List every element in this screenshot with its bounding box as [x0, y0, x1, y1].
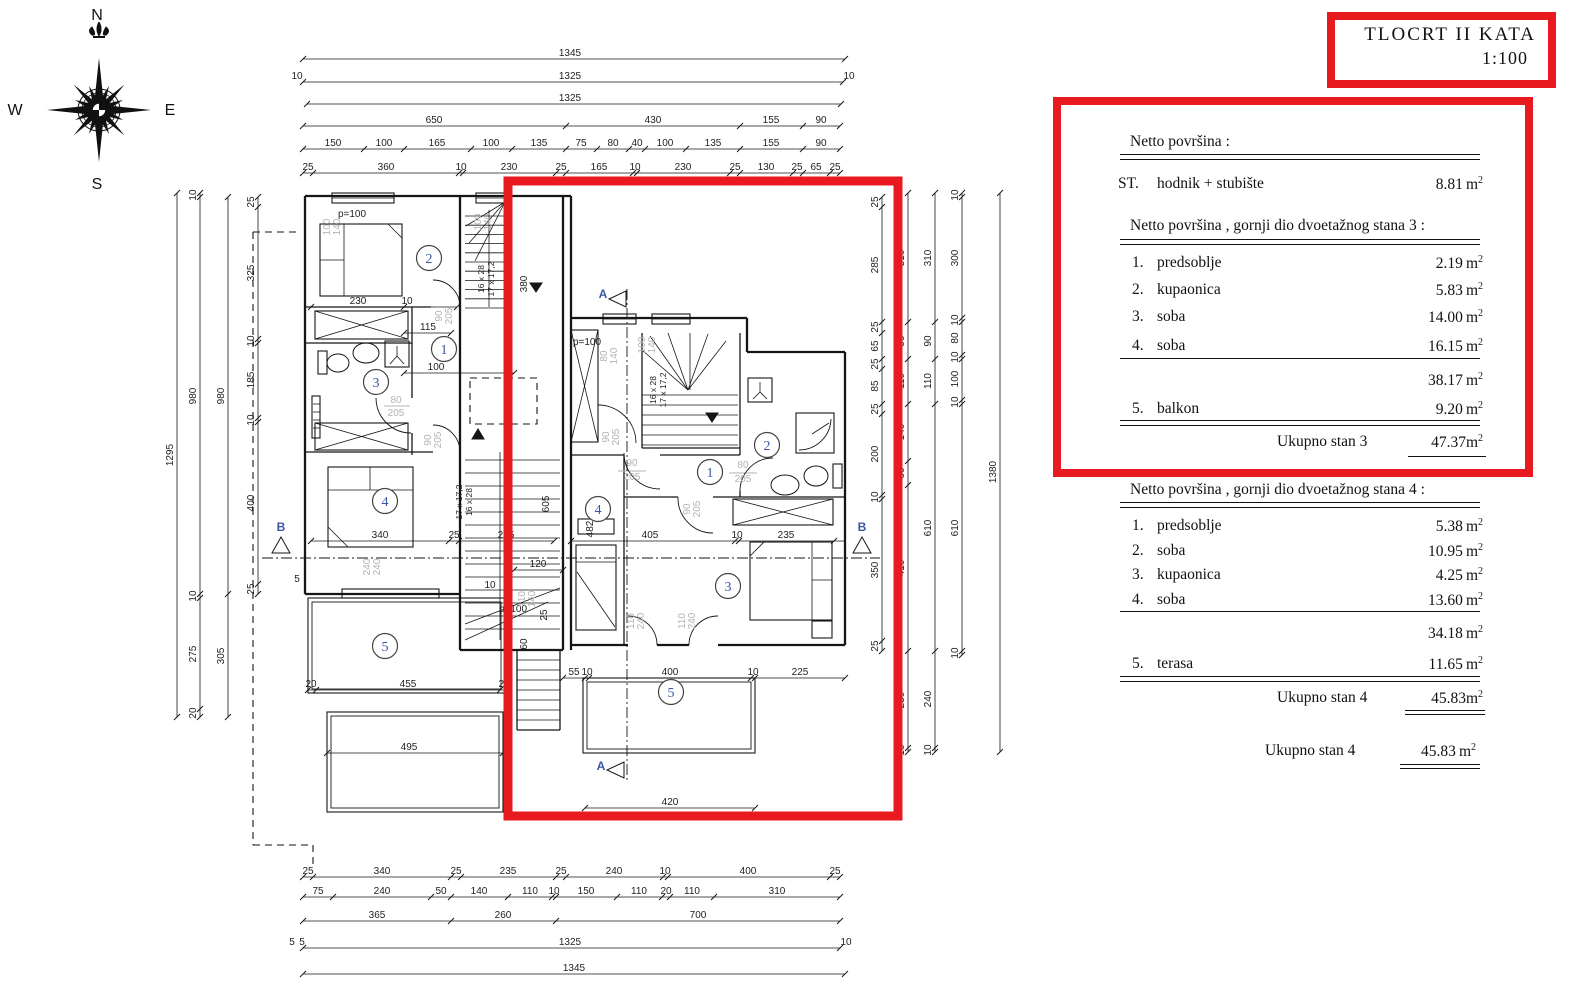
- dim-label: 1295: [165, 443, 176, 466]
- dim-label: 1380: [988, 460, 999, 483]
- rule: [1120, 154, 1480, 160]
- plan-graphic: [331, 716, 499, 808]
- row-name: soba: [1157, 542, 1185, 560]
- dim-label: 1325: [559, 71, 582, 82]
- compass-letter: E: [165, 102, 176, 119]
- fixture: [327, 354, 349, 372]
- dim-label: 225: [792, 667, 809, 678]
- dim-label: 430: [645, 115, 662, 126]
- fixture: [771, 475, 799, 495]
- fixture: [796, 413, 834, 453]
- room-number: 4: [595, 503, 602, 518]
- dim-label: 10: [840, 937, 852, 948]
- dim-label: 205: [388, 408, 405, 419]
- dim-label: 230: [675, 162, 692, 173]
- row-no: 4.: [1132, 337, 1144, 355]
- dim-label: 10: [548, 886, 560, 897]
- dim-label: 135: [531, 138, 548, 149]
- dim-label: 10: [950, 189, 961, 201]
- wall-line: [388, 224, 402, 238]
- dim-label: 205: [433, 431, 444, 448]
- dim-label: 482: [585, 520, 596, 537]
- dim-label: 110: [522, 886, 538, 897]
- room-number: 2: [764, 439, 771, 454]
- dim-label: 25: [555, 162, 567, 173]
- wall-line: [753, 392, 760, 399]
- dim-label: 230: [501, 162, 518, 173]
- dim-label: 235: [500, 866, 517, 877]
- dim-label: 10: [246, 414, 257, 426]
- stan3-total: 47.37m2: [1300, 433, 1483, 452]
- dim-label: 20: [188, 707, 199, 719]
- row-value: 2.19 m2: [1300, 254, 1483, 273]
- dim-label: 100: [376, 138, 393, 149]
- balkon-no: 5.: [1132, 400, 1144, 418]
- room-number: 5: [382, 640, 389, 655]
- dim-label: 65: [810, 162, 822, 173]
- dim-label: 20: [305, 679, 317, 690]
- marker-triangle: [609, 291, 626, 307]
- dim-label: 260: [495, 910, 512, 921]
- row-name: kupaonica: [1157, 281, 1221, 299]
- wall-line: [688, 341, 726, 390]
- wall-line: [328, 527, 348, 547]
- dim-label: 980: [188, 387, 199, 404]
- dim-label: 25: [791, 162, 803, 173]
- row-name: kupaonica: [1157, 566, 1221, 584]
- dim-label: A: [597, 759, 606, 773]
- dim-label: 10: [843, 71, 855, 82]
- dim-label: 110: [923, 373, 934, 389]
- dim-label: 140: [527, 590, 538, 607]
- room-number: 3: [373, 376, 380, 391]
- dim-label: 110: [631, 886, 647, 897]
- dim-label: 85: [870, 380, 881, 392]
- door-swing: [433, 280, 460, 307]
- netto-header: Netto površina :: [1130, 133, 1230, 151]
- dim-label: 10: [870, 491, 881, 503]
- row-value: 13.60 m2: [1300, 591, 1483, 610]
- marker-triangle: [853, 537, 871, 553]
- row-name: predsoblje: [1157, 254, 1222, 272]
- sheet-title: TLOCRT II KATA: [1335, 20, 1548, 46]
- compass-letter: N: [91, 7, 103, 24]
- dim-label: 340: [374, 866, 391, 877]
- dim-label: 100: [483, 138, 500, 149]
- room-number: 4: [382, 495, 389, 510]
- rule: [1400, 764, 1480, 769]
- row-name: predsoblje: [1157, 517, 1222, 535]
- dim-label: 90: [815, 115, 827, 126]
- dim-label: 420: [662, 797, 679, 808]
- dim-label: 205: [611, 428, 622, 445]
- stan4-subtotal: 34.18 m2: [1300, 624, 1483, 643]
- dim-label: 205: [735, 474, 752, 485]
- dim-label: 700: [690, 910, 707, 921]
- stan4-header: Netto površina , gornji dio dvoetažnog s…: [1130, 481, 1425, 499]
- dim-label: 17 x 17,2: [658, 372, 668, 407]
- dim-label: 25: [729, 162, 741, 173]
- dim-label: 365: [369, 910, 386, 921]
- dim-label: 305: [216, 647, 227, 664]
- dim-label: 495: [401, 742, 418, 753]
- door-swing: [799, 419, 831, 450]
- dim-label: 16 x 28: [476, 265, 486, 293]
- room-number: 2: [426, 252, 433, 267]
- dim-label: 200: [870, 445, 881, 462]
- rule: [1408, 456, 1486, 457]
- rule: [1120, 420, 1480, 426]
- dim-label: 140: [471, 886, 488, 897]
- dim-label: 185: [246, 371, 257, 388]
- dim-label: 10: [401, 296, 413, 307]
- wall-line: [760, 392, 767, 399]
- row-no: 1.: [1132, 517, 1144, 535]
- fixture: [833, 464, 842, 488]
- dim-label: 10: [950, 647, 961, 659]
- row-value: 5.83 m2: [1300, 281, 1483, 300]
- dim-label: 1345: [563, 963, 586, 974]
- dim-label: 16 x 28: [648, 376, 658, 404]
- dim-label: 240: [606, 866, 623, 877]
- dim-label: 25: [539, 609, 550, 621]
- dim-label: 205: [692, 500, 703, 517]
- dim-label: 17 x 17,2: [486, 261, 496, 296]
- dim-label: 310: [769, 886, 786, 897]
- room-number: 5: [668, 686, 675, 701]
- fixture: [804, 466, 828, 486]
- dim-label: 10: [950, 351, 961, 363]
- row-name: soba: [1157, 591, 1185, 609]
- row-no: 2.: [1132, 281, 1144, 299]
- row-value: 14.00 m2: [1300, 308, 1483, 327]
- dim-label: 55: [568, 667, 580, 678]
- dim-label: 25: [555, 866, 567, 877]
- rule: [1120, 502, 1480, 508]
- dim-label: 380: [519, 275, 530, 292]
- dim-label: 80: [737, 460, 749, 471]
- floor-plan-sheet: { "title_box": {"title": "TLOCRT II KATA…: [0, 0, 1576, 1002]
- rule: [1120, 358, 1480, 359]
- dim-label: 80: [950, 332, 961, 344]
- dim-label: B: [277, 520, 286, 534]
- terasa-name: terasa: [1157, 655, 1193, 673]
- dim-label: 400: [740, 866, 757, 877]
- dim-label: 1345: [559, 48, 582, 59]
- terasa-value: 11.65 m2: [1300, 655, 1483, 674]
- dim-label: 100: [428, 362, 445, 373]
- dim-label: 400: [246, 494, 257, 511]
- marker-triangle: [530, 283, 542, 292]
- dim-label: 10: [950, 314, 961, 326]
- dim-label: 75: [575, 138, 587, 149]
- dim-label: 25: [829, 162, 841, 173]
- dim-label: 240: [687, 612, 698, 629]
- marker-triangle: [472, 429, 484, 439]
- dim-label: 230: [350, 296, 367, 307]
- row-value: 16.15 m2: [1300, 337, 1483, 356]
- fixture: [328, 467, 413, 547]
- dim-label: 10: [731, 530, 743, 541]
- title-box: TLOCRT II KATA 1:100: [1327, 12, 1556, 88]
- dim-label: 10: [188, 590, 199, 602]
- row-value: 5.38 m2: [1300, 517, 1483, 536]
- dim-label: 140: [332, 218, 343, 235]
- dim-label: 610: [923, 519, 934, 536]
- dim-label: 25: [246, 196, 257, 208]
- dim-label: 650: [426, 115, 443, 126]
- stan4-total: 45.83m2: [1300, 689, 1483, 708]
- dim-label: 25: [302, 866, 314, 877]
- dim-label: 25: [870, 321, 881, 333]
- dim-label: 115: [420, 322, 436, 333]
- dim-label: 5: [299, 937, 305, 948]
- fixture: [312, 396, 320, 438]
- dim-label: 980: [216, 387, 227, 404]
- dim-label: 240: [374, 886, 391, 897]
- dim-label: 300: [950, 249, 961, 266]
- row-name: soba: [1157, 308, 1185, 326]
- sheet-scale: 1:100: [1335, 46, 1548, 69]
- dim-label: 240: [923, 690, 934, 707]
- dim-label: 50: [435, 886, 447, 897]
- dim-label: 10: [455, 162, 467, 173]
- dim-label: 17 x 17,2: [454, 484, 464, 519]
- dim-label: 5: [289, 937, 295, 948]
- wall-line: [397, 356, 404, 364]
- dim-label: 10: [484, 580, 496, 591]
- dim-label: 130: [758, 162, 775, 173]
- dim-label: 80: [607, 138, 619, 149]
- fleur-de-lis-icon: [90, 22, 109, 36]
- dim-label: 10: [629, 162, 641, 173]
- dim-label: 25: [870, 196, 881, 208]
- dim-label: 205: [444, 307, 455, 324]
- dim-label: 10: [246, 335, 257, 347]
- dim-label: 1325: [559, 937, 582, 948]
- compass-letter: W: [7, 102, 23, 119]
- row-no: 3.: [1132, 308, 1144, 326]
- dim-label: 350: [870, 561, 881, 578]
- terasa-no: 5.: [1132, 655, 1144, 673]
- dim-label: 240: [372, 558, 383, 575]
- row-no: 4.: [1132, 591, 1144, 609]
- dim-label: 140: [609, 347, 620, 364]
- dim-label: 100: [950, 370, 961, 387]
- st-name: hodnik + stubište: [1157, 175, 1264, 193]
- dim-label: 10: [950, 396, 961, 408]
- dim-label: 10: [747, 667, 759, 678]
- dim-label: A: [599, 287, 608, 301]
- dim-label: 10: [188, 189, 199, 201]
- wall-line: [750, 542, 764, 556]
- dim-label: 310: [923, 249, 934, 266]
- rule: [1405, 710, 1485, 715]
- fixture: [353, 343, 379, 363]
- stan3-subtotal: 38.17 m2: [1300, 371, 1483, 390]
- dim-label: 110: [684, 886, 700, 897]
- wall-line: [577, 572, 615, 627]
- room-number: 3: [725, 580, 732, 595]
- room-number: 1: [441, 343, 448, 358]
- dim-label: 20: [660, 886, 672, 897]
- row-no: 3.: [1132, 566, 1144, 584]
- dim-label: 75: [312, 886, 324, 897]
- stan3-header: Netto površina , gornji dio dvoetažnog s…: [1130, 217, 1425, 235]
- dim-label: 25: [246, 583, 257, 595]
- dim-label: 16 x 28: [464, 488, 474, 516]
- dim-label: 25: [870, 358, 881, 370]
- dim-label: 205: [624, 472, 641, 483]
- dim-label: p=100: [338, 209, 367, 220]
- row-no: 2.: [1132, 542, 1144, 560]
- row-name: soba: [1157, 337, 1185, 355]
- dim-label: 1325: [559, 93, 582, 104]
- dim-label: 235: [778, 530, 795, 541]
- dim-label: 90: [626, 458, 638, 469]
- rule: [1120, 239, 1480, 245]
- dim-label: 610: [950, 519, 961, 536]
- dim-label: 150: [578, 886, 595, 897]
- dim-label: 135: [705, 138, 722, 149]
- dim-label: 25: [829, 866, 841, 877]
- wall-line: [812, 423, 829, 434]
- marker-triangle: [272, 537, 290, 553]
- dim-label: p=100: [573, 337, 602, 348]
- dim-label: 165: [429, 138, 446, 149]
- dim-label: 90: [815, 138, 827, 149]
- dim-label: 65: [870, 340, 881, 352]
- dim-label: 275: [188, 645, 199, 662]
- apartment-highlight: [508, 181, 898, 816]
- dim-label: 155: [763, 115, 780, 126]
- wall-line: [390, 356, 397, 364]
- dim-label: 10: [659, 866, 671, 877]
- rule: [1120, 676, 1480, 682]
- rule: [1120, 611, 1480, 612]
- dim-label: 240: [636, 612, 647, 629]
- dim-label: 25: [448, 530, 460, 541]
- fixture: [812, 621, 832, 638]
- dim-label: 60: [519, 638, 530, 650]
- dim-label: 140: [647, 336, 658, 353]
- dim-label: 285: [870, 256, 881, 273]
- dim-label: 90: [923, 335, 934, 347]
- dim-label: 360: [378, 162, 395, 173]
- balkon-name: balkon: [1157, 400, 1199, 418]
- dim-label: 100: [657, 138, 674, 149]
- marker-triangle: [607, 762, 624, 778]
- dim-label: 325: [246, 264, 257, 281]
- row-no: 1.: [1132, 254, 1144, 272]
- wall-line: [688, 334, 708, 390]
- dim-label: 340: [372, 530, 389, 541]
- dim-label: 10: [291, 71, 303, 82]
- row-value: 10.95 m2: [1300, 542, 1483, 561]
- dim-label: 405: [642, 530, 659, 541]
- dim-label: B: [858, 520, 867, 534]
- room-number: 1: [707, 466, 714, 481]
- dim-label: 5: [294, 574, 300, 585]
- dim-label: 455: [400, 679, 417, 690]
- dim-label: 80: [390, 395, 402, 406]
- dim-label: 165: [591, 162, 608, 173]
- dim-label: 40: [631, 138, 643, 149]
- st-no: ST.: [1118, 175, 1139, 193]
- dim-label: 400: [662, 667, 679, 678]
- plan-graphic: [312, 602, 501, 689]
- dim-label: 25: [302, 162, 314, 173]
- dim-label: 150: [325, 138, 342, 149]
- dim-label: 120: [530, 559, 547, 570]
- balkon-value: 9.20 m2: [1300, 400, 1483, 419]
- dim-label: 605: [541, 495, 552, 512]
- dim-label: 10: [923, 744, 934, 756]
- dim-label: 25: [870, 640, 881, 652]
- st-value: 8.81 m2: [1300, 175, 1483, 194]
- stan4-total2: 45.83 m2: [1290, 742, 1476, 761]
- marker-triangle: [706, 413, 718, 422]
- terrace-edge: [327, 712, 503, 812]
- dim-label: 10: [581, 667, 593, 678]
- fixture: [750, 542, 832, 620]
- dim-label: 25: [870, 403, 881, 415]
- row-value: 4.25 m2: [1300, 566, 1483, 585]
- dim-label: 140: [483, 213, 494, 230]
- fixture: [318, 351, 327, 374]
- dim-label: 155: [763, 138, 780, 149]
- compass-letter: S: [92, 176, 103, 193]
- dim-label: 25: [450, 866, 462, 877]
